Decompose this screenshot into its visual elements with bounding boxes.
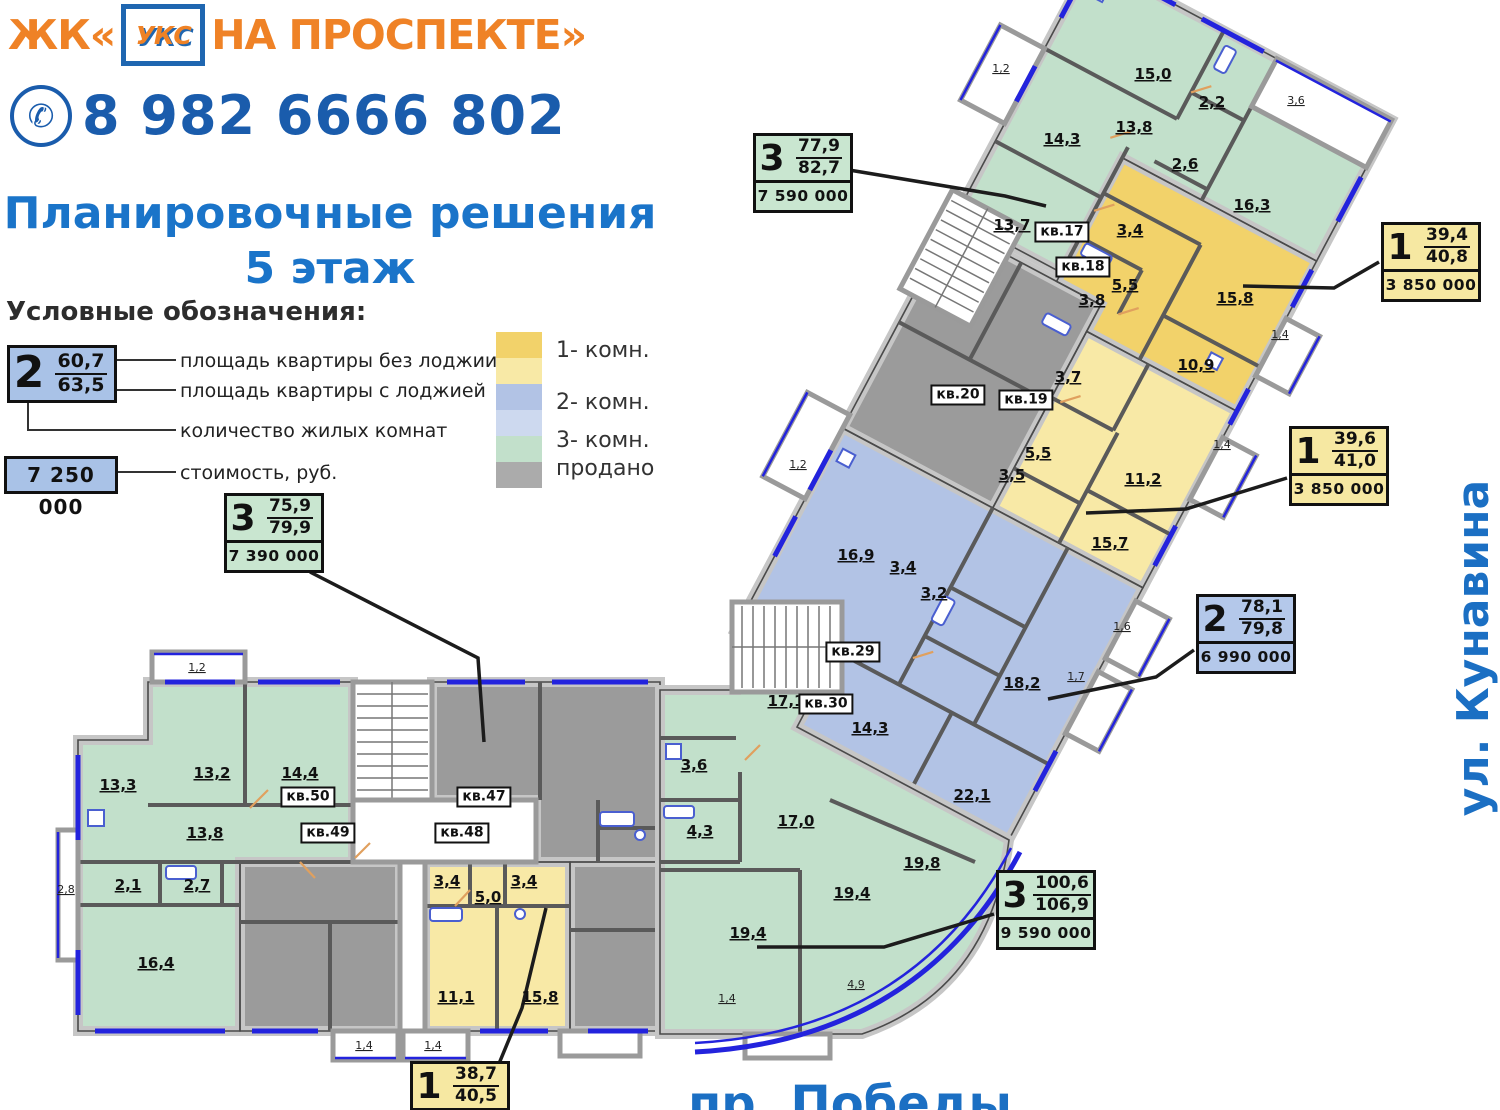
room-label: 1,4: [1271, 328, 1289, 341]
swatch-2room-light: [496, 410, 542, 436]
room-label: 2,1: [115, 876, 142, 894]
legend-type-sold: продано: [556, 456, 654, 481]
sample-area-top: 60,7: [55, 351, 108, 375]
room-label: 11,2: [1124, 470, 1161, 488]
legend-sample-card: 2 60,7 63,5: [7, 345, 117, 403]
price-card-kv18: 1 39,440,8 3 850 000: [1381, 222, 1481, 302]
street-label-kunavina: ул. Кунавина: [1448, 408, 1500, 888]
room-label: 3,4: [890, 558, 917, 576]
room-label: 1,4: [424, 1039, 442, 1052]
price-card-kv30: 3 100,6106,9 9 590 000: [996, 870, 1096, 950]
entry-corridor: [400, 862, 425, 1031]
room-label: 1,6: [1113, 620, 1131, 633]
swatch-sold: [496, 462, 542, 488]
room-label: 2,6: [1172, 155, 1199, 173]
room-label: 16,3: [1233, 196, 1270, 214]
logo-suffix: НА ПРОСПЕКТЕ»: [211, 11, 586, 59]
phone-row: ✆ 8 982 6666 802: [10, 84, 566, 147]
room-label: 3,7: [1055, 368, 1082, 386]
logo-prefix: ЖК«: [8, 11, 115, 59]
room-label: 3,8: [1079, 291, 1106, 309]
room-label: 17,0: [777, 812, 814, 830]
legend-label-rooms: количество жилых комнат: [180, 420, 447, 442]
swatch-3room: [496, 436, 542, 462]
unit-plaque-kv30: кв.30: [798, 694, 853, 715]
unit-plaque-kv18: кв.18: [1055, 257, 1110, 278]
phone-icon: ✆: [10, 85, 72, 147]
logo-box: УКС: [121, 4, 205, 66]
room-label: 2,8: [57, 883, 75, 896]
room-label: 1,4: [355, 1039, 373, 1052]
room-label: 5,5: [1112, 276, 1139, 294]
room-label: 3,6: [1287, 94, 1305, 107]
legend-label-price: стоимость, руб.: [180, 462, 337, 484]
room-label: 15,7: [1091, 534, 1128, 552]
sample-rooms-count: 2: [10, 348, 48, 400]
room-label: 4,3: [687, 822, 714, 840]
room-label: 10,9: [1177, 356, 1214, 374]
room-label: 11,1: [437, 988, 474, 1006]
swatch-2room-dark: [496, 384, 542, 410]
room-label: 16,9: [837, 546, 874, 564]
page-title: Планировочные решения: [0, 188, 660, 239]
legend-label-area-top: площадь квартиры без лоджии: [180, 350, 497, 372]
page-subtitle-floor: 5 этаж: [0, 243, 660, 294]
unit-plaque-kv19: кв.19: [998, 390, 1053, 411]
unit-plaque-kv48: кв.48: [434, 823, 489, 844]
price-card-kv29: 2 78,179,8 6 990 000: [1196, 594, 1296, 674]
room-label: 1,2: [789, 458, 807, 471]
room-label: 3,2: [921, 584, 948, 602]
unit-plaque-kv47: кв.47: [456, 787, 511, 808]
poster-page: 1,2 13,2 14,4 13,3 13,8 2,8 2,1 2,7 16,4…: [0, 0, 1500, 1110]
lower-wing: [58, 652, 660, 1060]
legend-type-3room: 3- комн.: [556, 428, 650, 453]
price-card-kv48: 1 38,740,5: [410, 1061, 510, 1110]
room-label: 2,7: [184, 876, 211, 894]
room-label: 1,7: [1067, 670, 1085, 683]
room-label: 5,5: [1025, 444, 1052, 462]
room-label: 15,8: [1216, 289, 1253, 307]
price-card-kv17: 3 77,982,7 7 590 000: [753, 133, 853, 213]
room-label: 1,4: [718, 992, 736, 1005]
logo: ЖК« УКС НА ПРОСПЕКТЕ»: [8, 4, 586, 66]
room-label: 3,4: [434, 872, 461, 890]
room-label: 13,2: [193, 764, 230, 782]
legend-sample-price: 7 250 000: [4, 456, 118, 494]
room-label: 2,2: [1199, 93, 1226, 111]
room-label: 1,2: [992, 62, 1010, 75]
room-label: 1,4: [1213, 438, 1231, 451]
room-label: 19,4: [729, 924, 766, 942]
room-label: 13,8: [186, 824, 223, 842]
room-label: 22,1: [953, 786, 990, 804]
swatch-1room-dark: [496, 332, 542, 358]
phone-number: 8 982 6666 802: [82, 84, 566, 147]
legend-heading: Условные обозначения:: [6, 297, 366, 327]
price-card-kv19: 1 39,641,0 3 850 000: [1289, 426, 1389, 506]
room-label: 13,3: [99, 776, 136, 794]
legend-label-area-bottom: площадь квартиры с лоджией: [180, 380, 486, 402]
unit-plaque-kv20: кв.20: [930, 385, 985, 406]
room-label: 15,8: [521, 988, 558, 1006]
room-label: 19,4: [833, 884, 870, 902]
room-label: 3,5: [999, 466, 1026, 484]
room-label: 3,4: [1117, 221, 1144, 239]
room-label: 15,0: [1134, 65, 1171, 83]
room-label: 1,2: [188, 661, 206, 674]
sample-area-bottom: 63,5: [58, 375, 105, 397]
room-label: 19,8: [903, 854, 940, 872]
room-label: 5,0: [475, 888, 502, 906]
room-label: 14,3: [1043, 130, 1080, 148]
legend-type-2room: 2- комн.: [556, 390, 650, 415]
room-label: 3,6: [681, 756, 708, 774]
room-label: 14,3: [851, 719, 888, 737]
unit-plaque-kv50: кв.50: [280, 787, 335, 808]
room-label: 3,4: [511, 872, 538, 890]
street-label-pobedy: пр. Победы: [640, 1076, 1060, 1110]
room-label: 14,4: [281, 764, 318, 782]
swatch-1room-light: [496, 358, 542, 384]
room-label: 16,4: [137, 954, 174, 972]
unit-plaque-kv17: кв.17: [1034, 222, 1089, 243]
price-card-kv50: 3 75,979,9 7 390 000: [224, 493, 324, 573]
logo-mark: УКС: [136, 21, 191, 50]
legend-type-1room: 1- комн.: [556, 338, 650, 363]
room-label: 4,9: [847, 978, 865, 991]
room-label: 18,2: [1003, 674, 1040, 692]
unit-plaque-kv49: кв.49: [300, 823, 355, 844]
room-label: 13,8: [1115, 118, 1152, 136]
room-label: 13,7: [993, 216, 1030, 234]
unit-plaque-kv29: кв.29: [825, 642, 880, 663]
